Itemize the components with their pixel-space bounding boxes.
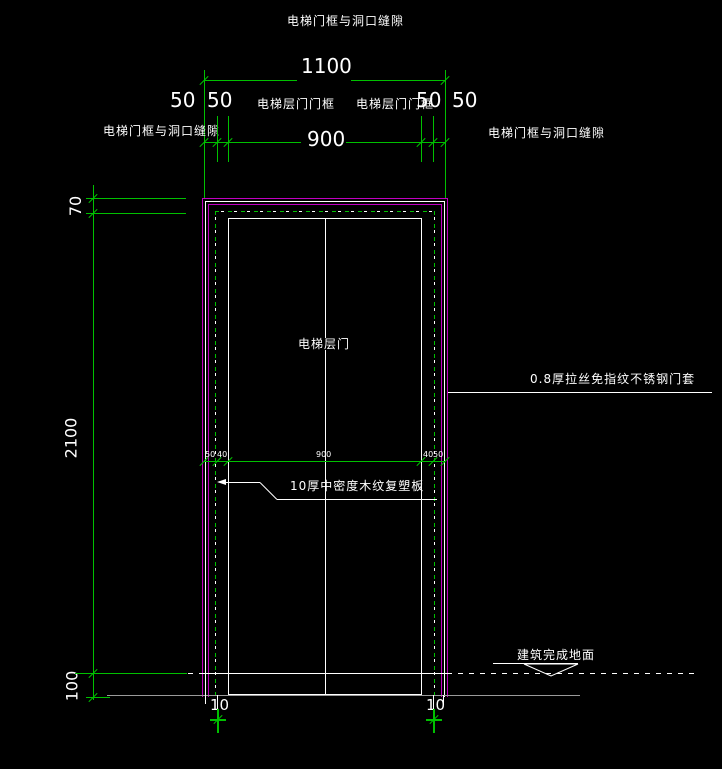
- floor-line-green: [75, 673, 187, 674]
- frame-note-underline: [448, 392, 712, 393]
- dim-line-left-vertical: [93, 185, 94, 700]
- dim-bottom-right: 10: [426, 698, 445, 713]
- leader-line: [226, 482, 260, 483]
- extension-line: [205, 695, 206, 704]
- floor-line-solid: [202, 673, 447, 674]
- door-label: 电梯层门: [296, 338, 352, 350]
- bottom-marker-vertical-right: [433, 709, 435, 733]
- bottom-marker-vertical-left: [217, 709, 219, 733]
- dim-lintel: 70: [68, 196, 84, 216]
- extension-line-right-outer: [445, 70, 446, 198]
- note-gap-right: 电梯门框与洞口缝隙: [488, 127, 605, 139]
- note-gap-left: 电梯门框与洞口缝隙: [103, 125, 220, 137]
- dim-line-1100-right: [351, 80, 445, 81]
- dim-gap-left: 50: [170, 90, 195, 110]
- extension-line-sill: [86, 697, 110, 698]
- extension-line-lintel-top: [86, 198, 186, 199]
- level-symbol-icon: [520, 663, 582, 678]
- dim-bottom-left: 10: [210, 698, 229, 713]
- frame-note: 0.8厚拉丝免指纹不锈钢门套: [530, 373, 695, 385]
- drawing-title: 电梯门框与洞口缝隙: [287, 15, 404, 27]
- panel-note-underline: [277, 499, 437, 500]
- cad-drawing-canvas: 电梯门框与洞口缝隙 1100 50 50 50 50 电梯层门门框 电梯层门门框…: [0, 0, 722, 769]
- floor-note: 建筑完成地面: [517, 649, 595, 661]
- dim-frame-left: 50: [207, 90, 232, 110]
- dim-mid-opening: 900: [316, 451, 331, 459]
- dim-gap-right: 50: [452, 90, 477, 110]
- leader-arrow-icon: [217, 479, 226, 485]
- frame-dashed-top: [215, 211, 435, 212]
- floor-line-dash-left: [188, 673, 202, 674]
- dim-line-mid: [204, 461, 445, 462]
- sill-line: [107, 695, 580, 696]
- dim-opening-width: 900: [307, 129, 345, 149]
- dim-overall-width: 1100: [301, 56, 352, 76]
- label-door-frame-right: 电梯层门门框: [356, 98, 434, 110]
- dim-line-900-left: [204, 142, 301, 143]
- dim-floor-height: 100: [64, 671, 80, 702]
- dim-line-1100-left: [204, 80, 297, 81]
- dim-door-height: 2100: [63, 418, 79, 459]
- label-door-frame-left: 电梯层门门框: [257, 98, 335, 110]
- panel-note: 10厚中密度木纹复塑板: [290, 480, 424, 492]
- extension-line-lintel-bottom: [86, 213, 186, 214]
